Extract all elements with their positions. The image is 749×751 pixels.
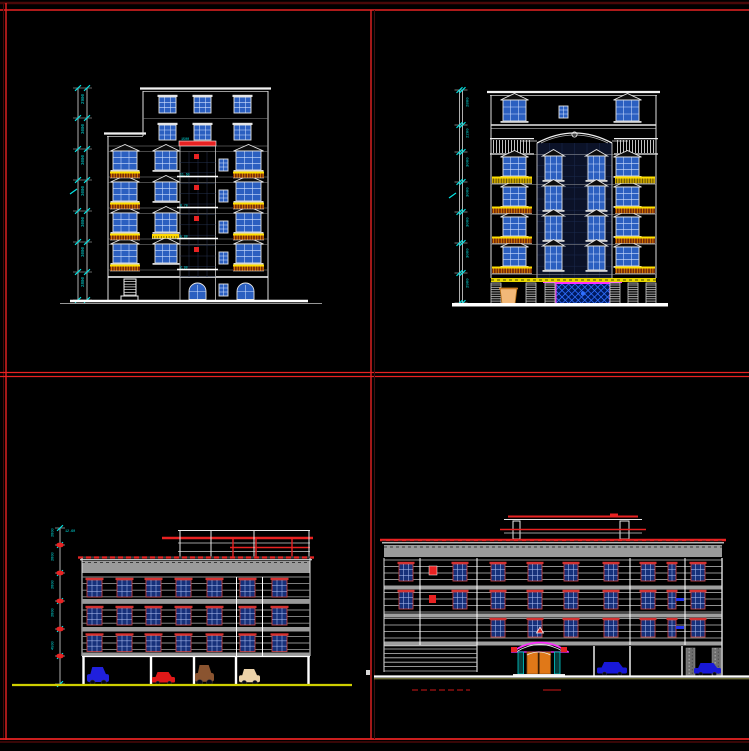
stone-column <box>686 648 695 676</box>
svg-text:3000: 3000 <box>82 246 86 257</box>
balcony-railing <box>615 237 655 244</box>
svg-text:3000: 3000 <box>82 216 86 227</box>
pediment-window <box>614 151 642 178</box>
car <box>597 662 627 676</box>
svg-text:3000: 3000 <box>467 157 471 167</box>
dimension-text: 3000 <box>467 157 471 167</box>
cad-rect <box>676 598 684 601</box>
dimension-chain <box>55 525 65 687</box>
dimension-marker <box>56 571 64 576</box>
cad-rect <box>194 247 199 252</box>
dimension-text: 1500 <box>181 138 189 142</box>
cad-rect <box>194 185 199 190</box>
svg-text:3000: 3000 <box>82 154 86 165</box>
view-elevation-top-right[interactable]: 2800220030003000300030002900 <box>449 87 668 306</box>
pediment-window <box>543 180 565 212</box>
pediment-window <box>501 211 529 238</box>
dimension-marker <box>56 627 64 632</box>
pediment-window <box>501 181 529 208</box>
pediment-window <box>111 238 140 265</box>
balcony-railing <box>492 237 532 244</box>
dimension-text: 8.70 <box>180 204 188 208</box>
balcony-railing <box>615 177 655 184</box>
pediment-window <box>234 207 264 234</box>
pediment-window <box>501 151 529 178</box>
pediment-window <box>153 238 180 265</box>
window <box>219 190 228 202</box>
dimension-text: 2900 <box>467 278 471 288</box>
pediment-window <box>234 238 264 265</box>
svg-text:3000: 3000 <box>467 217 471 227</box>
pediment-window <box>234 145 264 172</box>
cad-line <box>449 193 456 198</box>
window <box>667 562 678 581</box>
pediment-window <box>111 145 140 172</box>
window-row <box>398 562 707 581</box>
car <box>195 665 214 685</box>
svg-text:2800: 2800 <box>52 528 56 537</box>
svg-text:4500: 4500 <box>52 641 56 650</box>
dimension-text: 2800 <box>467 97 471 107</box>
6 <box>124 282 136 296</box>
svg-text:12.60: 12.60 <box>65 530 75 534</box>
window-row <box>158 95 253 113</box>
pediment-window <box>586 240 608 272</box>
balcony-railing <box>233 265 264 272</box>
pediment-window <box>586 150 608 182</box>
window <box>667 618 678 637</box>
view-elevation-bottom-right[interactable] <box>374 514 749 691</box>
cad-rect <box>82 599 310 604</box>
cad-path <box>537 133 612 143</box>
cad-rect <box>452 303 668 307</box>
pediment-window <box>614 94 642 123</box>
dimension-text: 4500 <box>52 641 56 650</box>
cad-rect <box>518 652 524 674</box>
svg-text:8.70: 8.70 <box>180 204 188 208</box>
svg-text:2200: 2200 <box>467 128 471 138</box>
balcony-railing <box>110 265 140 272</box>
arched-window <box>189 283 206 300</box>
balcony-railing <box>110 234 140 241</box>
drawing-svg[interactable]: 2900300030003000300030002800150011.608.7… <box>0 0 749 751</box>
dimension-text: 3000 <box>82 154 86 165</box>
striped-column <box>545 283 555 304</box>
pediment-window <box>614 181 642 208</box>
cad-rect <box>194 216 199 221</box>
dimension-text: 2800 <box>52 580 56 589</box>
balcony-railing <box>110 203 140 210</box>
svg-text:2800: 2800 <box>52 552 56 561</box>
balcony-railing <box>492 207 532 214</box>
cad-rect <box>384 586 722 590</box>
balcony-railing <box>152 234 179 239</box>
pediment-window <box>501 241 529 268</box>
cad-rect <box>429 595 436 603</box>
window-row <box>86 606 289 625</box>
dimension-text: 3000 <box>467 187 471 197</box>
pediment-window <box>614 241 642 268</box>
pediment-window <box>153 207 180 234</box>
svg-text:3000: 3000 <box>82 185 86 196</box>
pediment-window <box>543 240 565 272</box>
pediment-window <box>543 210 565 242</box>
window <box>219 284 228 296</box>
svg-text:2900: 2900 <box>467 278 471 288</box>
striped-column <box>646 283 656 304</box>
cad-path <box>500 288 517 304</box>
car <box>239 669 260 685</box>
svg-text:2800: 2800 <box>467 97 471 107</box>
svg-text:3000: 3000 <box>467 248 471 258</box>
balcony-railing <box>233 234 264 241</box>
svg-text:2900: 2900 <box>82 93 86 104</box>
cad-rect <box>527 652 538 674</box>
cad-rect <box>82 627 310 632</box>
window <box>667 590 678 609</box>
dimension-marker <box>56 599 64 604</box>
dimension-text: 2800 <box>52 528 56 537</box>
dimension-marker <box>56 654 64 659</box>
balcony-railing <box>615 207 655 214</box>
balcony-railing <box>492 267 532 274</box>
pediment-window <box>501 94 529 123</box>
cad-viewport[interactable]: 2900300030003000300030002800150011.608.7… <box>0 0 749 751</box>
dimension-text: 2900 <box>82 93 86 104</box>
dimension-text: 3000 <box>82 185 86 196</box>
cad-rect <box>511 647 517 652</box>
svg-text:1500: 1500 <box>181 138 189 142</box>
striped-column <box>526 283 536 304</box>
balcony-railing <box>233 172 264 179</box>
svg-text:2800: 2800 <box>52 608 56 617</box>
car <box>87 667 109 685</box>
dimension-text: 3000 <box>82 123 86 134</box>
window <box>219 159 228 171</box>
balustrade <box>614 139 658 154</box>
dimension-text: 2800 <box>52 608 56 617</box>
pediment-window <box>111 176 140 203</box>
balcony-railing <box>615 267 655 274</box>
6 <box>384 649 477 671</box>
pediment-window <box>614 211 642 238</box>
dimension-marker <box>56 543 64 548</box>
svg-text:2.90: 2.90 <box>180 266 188 270</box>
cad-rect <box>555 652 561 674</box>
dimension-text: 2800 <box>52 552 56 561</box>
striped-column <box>610 283 620 304</box>
window-row <box>158 123 253 140</box>
balcony-railing <box>110 172 140 179</box>
dimension-text: 3000 <box>82 216 86 227</box>
pediment-window <box>586 180 608 212</box>
striped-column <box>491 283 501 304</box>
svg-text:5.80: 5.80 <box>180 235 188 239</box>
arched-window <box>237 283 254 300</box>
svg-text:2800: 2800 <box>52 580 56 589</box>
dimension-text: 11.60 <box>180 173 190 177</box>
svg-text:11.60: 11.60 <box>180 173 190 177</box>
pediment-window <box>153 145 180 172</box>
pediment-window <box>153 176 180 203</box>
dimension-text: 3000 <box>82 246 86 257</box>
dimension-text: 2.90 <box>180 266 188 270</box>
pediment-window <box>111 207 140 234</box>
view-elevation-top-left[interactable]: 2900300030003000300030002800150011.608.7… <box>60 85 322 303</box>
balcony-railing <box>492 177 532 184</box>
striped-column <box>628 283 638 304</box>
dimension-text: 3000 <box>467 248 471 258</box>
window <box>219 252 228 264</box>
dimension-text: 3000 <box>467 217 471 227</box>
dimension-text: 12.60 <box>65 530 75 534</box>
cad-path <box>541 135 608 143</box>
cad-line <box>70 189 77 194</box>
cad-rect <box>384 614 722 618</box>
dimension-text: 5.80 <box>180 235 188 239</box>
cad-rect <box>540 652 551 674</box>
cad-rect <box>561 647 567 652</box>
cad-rect <box>676 626 684 629</box>
pediment-window <box>543 150 565 182</box>
window-row <box>86 578 289 597</box>
window <box>559 106 568 118</box>
pediment-window <box>234 176 264 203</box>
ornament-circle <box>581 291 585 295</box>
cad-rect <box>429 566 437 575</box>
svg-text:3000: 3000 <box>467 187 471 197</box>
view-elevation-bottom-left[interactable]: 2800280028002800450012.60 <box>12 525 370 687</box>
window <box>219 221 228 233</box>
svg-text:3000: 3000 <box>82 123 86 134</box>
balcony-railing <box>233 203 264 210</box>
cad-rect <box>366 670 370 675</box>
facade-grid <box>180 152 216 277</box>
dimension-text: 2800 <box>82 276 86 287</box>
dimension-text: 2200 <box>467 128 471 138</box>
svg-text:2800: 2800 <box>82 276 86 287</box>
car <box>152 672 175 685</box>
cad-rect <box>194 154 199 159</box>
pediment-window <box>586 210 608 242</box>
